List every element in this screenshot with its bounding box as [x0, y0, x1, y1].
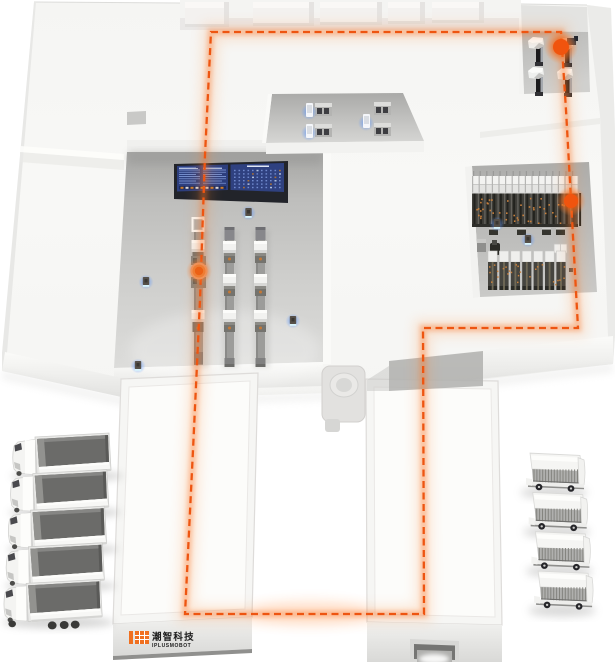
svg-text:潮智科技: 潮智科技 — [152, 631, 195, 643]
svg-text:IPLUSMOBOT: IPLUSMOBOT — [152, 643, 191, 649]
